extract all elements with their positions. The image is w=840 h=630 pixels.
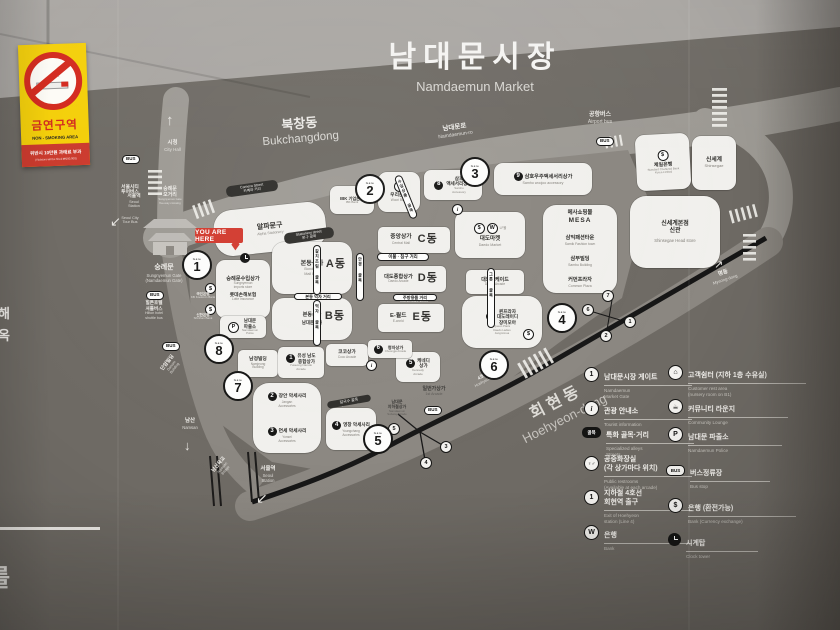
curr-exchange-icon: $ xyxy=(523,329,534,340)
building-bondong-a: 본동상가 Bondong Mall Bldg A동 xyxy=(272,242,352,294)
block-letter: D동 xyxy=(418,272,438,285)
police-icon: P xyxy=(228,322,239,333)
building-jangan-yonsei: 2 장안 악세사리 Jangan Accessories 3 연세 악세사리 Y… xyxy=(253,383,321,453)
restroom-icon: ♀♂ xyxy=(584,456,599,471)
market-gate-8: Gate8 xyxy=(204,334,234,364)
subway-exit: 7 xyxy=(602,290,614,302)
label-sungnyemun-crossing: 숭례문 오거리 Sungnyemun Gate five-way crossin… xyxy=(148,186,192,205)
numbered-building-marker: 1 xyxy=(286,354,295,363)
block-letter: A동 xyxy=(326,258,346,271)
market-gate-5: Gate5 xyxy=(363,424,393,454)
namdaemun-market-map-sign: 롯해 면옥 를 금연구역 NON - SMOKING AREA 위반시 10만원… xyxy=(0,0,840,630)
building-eworld: E-월드 E-world E동 xyxy=(378,304,444,332)
building-shinsegae: 신세계 Shinsegae xyxy=(692,136,736,190)
label-shinhan-bank: 신한은행 Shinhan Bank xyxy=(186,313,220,321)
clock-tower-icon xyxy=(240,253,250,263)
no-smoking-title: 금연구역 xyxy=(31,116,78,134)
numbered-building-marker: 8 xyxy=(434,181,443,190)
currency-exchange-icon: $ xyxy=(657,149,669,161)
you-are-here-marker: YOU ARE HERE xyxy=(195,228,243,243)
kitchenware-street-pill: 주방용품 거리 xyxy=(393,294,437,301)
rest-area-icon: ⌂ xyxy=(668,365,683,380)
bus-stop-marker: BUS xyxy=(424,406,442,415)
label-hotel-shuttle: 힐튼호텔 셔틀버스 Hilton hotel shuttle bus xyxy=(126,300,182,320)
down-arrow-icon: ↓ xyxy=(184,438,191,453)
building-sungnyemun-imports: 숭례문수입상가 Sungnyemun imports store 롯데손해보험 … xyxy=(216,260,270,318)
no-smoking-penalty-strip: 위반시 10만원 과태료 부과 (Violators will be fined… xyxy=(21,143,90,167)
building-queen-plaza: 7 퀸프라자 대도레이디 장미모아 Queen Plaza Daedo Ladi… xyxy=(462,296,542,348)
currency-exchange-icon: $ xyxy=(668,498,683,513)
bus-stop-icon: BUS xyxy=(666,465,685,476)
currency-exchange-icon: $ xyxy=(474,223,485,234)
ne-arrow-icon: ↗ xyxy=(714,258,723,271)
tourist-info-icon: i xyxy=(452,204,463,215)
building-yuseong-namdo: 1 유성 남도 종합상가 Yuseong Namdo Arcade xyxy=(278,347,324,378)
market-gate-2: Gate2 xyxy=(355,174,385,204)
building-daedo-market: $ W LF몰 대도마켓 Daedo Market xyxy=(455,212,525,258)
alley-pill-vertical: 그릇 골목 xyxy=(487,268,495,328)
numbered-building-marker: 5 xyxy=(406,359,415,368)
subway-exit: 6 xyxy=(582,304,594,316)
building-samho-woojoo: 9 삼호우주액세서리상가 Samho woojoo accessory xyxy=(494,163,592,195)
building-namdaemun-police: P 남대문 파출소 Namdaemun Police xyxy=(220,316,266,338)
numbered-building-marker: 3 xyxy=(268,427,277,436)
subway-exit: 2 xyxy=(600,330,612,342)
building-bondong-b: 본동상가 남대문상가 B동 xyxy=(272,298,352,340)
block-letter: E동 xyxy=(413,311,432,324)
label-kookmin-bank: 국민은행 KB Kookmin Bank xyxy=(186,292,220,300)
building-coco-arcade: 코코상가 Coco Arcade xyxy=(326,344,368,366)
no-smoking-sticker: 금연구역 NON - SMOKING AREA 위반시 10만원 과태료 부과 … xyxy=(18,43,90,167)
subway-exit-icon: 1 xyxy=(584,490,599,505)
no-smoking-icon xyxy=(23,51,83,111)
market-gate-1: Gate1 xyxy=(182,250,212,280)
numbered-building-marker: 2 xyxy=(268,392,277,401)
sw-arrow-icon: ↙ xyxy=(256,490,268,507)
block-letter: C동 xyxy=(418,233,438,246)
bedding-street-pill: 이불 · 침구 거리 xyxy=(377,253,429,261)
subway-exit: 1 xyxy=(624,316,636,328)
info-icon: i xyxy=(584,401,599,416)
numbered-building-marker: 6 xyxy=(374,345,383,354)
lounge-icon: ☕ xyxy=(668,399,683,414)
subway-exit: 3 xyxy=(440,441,452,453)
label-subway-arcade: 남대문 지하철상가 Namdaemun Subway Arcade xyxy=(374,400,420,417)
no-smoking-subtitle: NON - SMOKING AREA xyxy=(32,134,78,141)
panel-seam xyxy=(117,0,119,630)
alley-pill-vertical: 안경 골목 xyxy=(356,253,364,301)
block-letter: B동 xyxy=(325,310,345,323)
market-gate-7: Gate7 xyxy=(223,371,253,401)
building-shinsegae-head: 신세계본점 신관 Shinsegae Head store xyxy=(630,196,720,268)
police-icon: P xyxy=(668,427,683,442)
sw-arrow-icon: ↙ xyxy=(110,214,121,230)
alley-pill-vertical: 갈치조림 골목 xyxy=(313,245,321,295)
label-airport-bus: 공항버스 Airport bus xyxy=(570,112,630,125)
panel-seam xyxy=(688,0,690,630)
bank-icon: W xyxy=(487,223,498,234)
up-arrow-icon: ↑ xyxy=(166,112,174,129)
label-seoul-station-sw: 서울역 Seoul Station xyxy=(246,466,290,483)
adjacent-sign-fragment: 면옥 xyxy=(0,325,10,344)
bus-stop-marker: BUS xyxy=(596,137,614,146)
bus-stop-marker: BUS xyxy=(122,155,140,164)
gate-number-icon: 1 xyxy=(584,367,599,382)
building-mesa: 메사쇼핑몰 MESA 삼익패션타운 Samik Fashion town 삼부빌… xyxy=(543,205,617,293)
bank-icon: W xyxy=(584,525,599,540)
alley-icon: 골목 xyxy=(582,427,601,438)
adjacent-sign-fragment: 롯해 xyxy=(0,303,10,322)
alley-pill-vertical: 먹자 골목 xyxy=(313,300,321,346)
legend-item-bus-stop: BUS 버스정류장Bus stop xyxy=(666,462,796,490)
adjacent-sign-fragment: 를 xyxy=(0,558,10,593)
market-gate-6: Gate6 xyxy=(479,350,509,380)
numbered-building-marker: 4 xyxy=(332,421,341,430)
tourist-info-icon: i xyxy=(366,360,377,371)
subway-exit: 4 xyxy=(420,457,432,469)
numbered-building-marker: 9 xyxy=(514,172,523,181)
label-namsan: 남산 Namsan xyxy=(168,418,212,430)
clock-tower-icon xyxy=(668,533,681,546)
market-gate-3: Gate3 xyxy=(460,157,490,187)
market-gate-4: Gate4 xyxy=(547,303,577,333)
bus-stop-marker: BUS xyxy=(146,291,164,300)
building-cheongja: 6 청자상가 Cheongja Arcade xyxy=(368,340,412,358)
sign-title: 남대문시장 Namdaemun Market xyxy=(310,40,640,94)
adjacent-sign-line xyxy=(0,527,100,530)
building-standard-chartered: $ 제일은행 Standard Chartered Bank Korea Lim… xyxy=(635,133,692,192)
label-city-hall: 시청 City Hall xyxy=(150,140,195,152)
building-daedo-arcade: 대도아케이드 Daedo Arcade xyxy=(466,270,524,294)
